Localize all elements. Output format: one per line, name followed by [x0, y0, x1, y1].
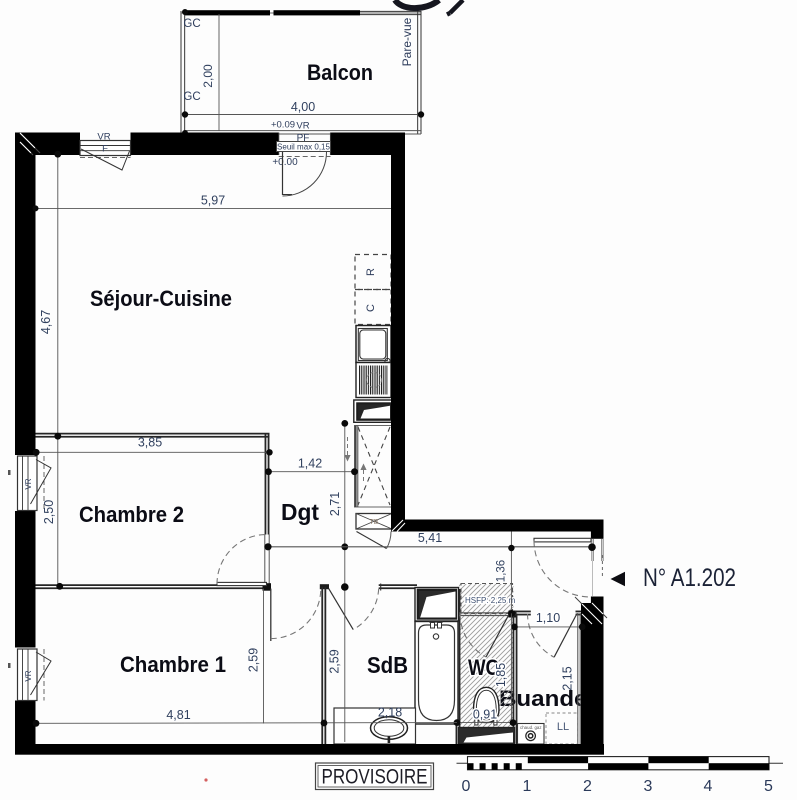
svg-text:2: 2 — [583, 778, 592, 795]
svg-text:4,67: 4,67 — [39, 310, 53, 334]
svg-text:3,85: 3,85 — [138, 436, 162, 450]
svg-text:2,50: 2,50 — [42, 500, 56, 524]
svg-text:N° A1.202: N° A1.202 — [643, 564, 736, 592]
svg-text:2,59: 2,59 — [328, 649, 342, 673]
svg-text:4,00: 4,00 — [291, 100, 315, 114]
svg-text:2,71: 2,71 — [328, 492, 342, 516]
svg-text:0: 0 — [462, 778, 471, 795]
svg-text:1,10: 1,10 — [536, 611, 560, 625]
svg-text:SdB: SdB — [367, 652, 408, 678]
svg-text:C: C — [365, 304, 377, 312]
svg-text:1,36: 1,36 — [496, 560, 508, 582]
svg-text:Seuil max 0,15: Seuil max 0,15 — [277, 143, 330, 152]
svg-text:Chambre 2: Chambre 2 — [79, 502, 184, 527]
svg-text:Pare-vue: Pare-vue — [400, 17, 414, 66]
svg-text:0,91: 0,91 — [473, 708, 497, 722]
svg-text:+0.00: +0.00 — [272, 157, 298, 168]
svg-text:+0.09: +0.09 — [271, 120, 295, 131]
svg-text:Chambre 1: Chambre 1 — [120, 652, 226, 677]
svg-text:1,42: 1,42 — [298, 457, 322, 471]
svg-text:4: 4 — [704, 778, 713, 795]
svg-text:LL: LL — [557, 721, 569, 733]
svg-text:VR: VR — [296, 121, 309, 132]
svg-text:1,85: 1,85 — [494, 663, 508, 687]
svg-text:2,15: 2,15 — [561, 666, 575, 690]
svg-text:5,97: 5,97 — [201, 194, 225, 208]
svg-text:VR: VR — [97, 132, 110, 143]
svg-text:VR: VR — [24, 670, 33, 681]
svg-text:5,41: 5,41 — [418, 531, 442, 545]
svg-text:GC: GC — [183, 18, 200, 30]
svg-text:4,81: 4,81 — [166, 708, 190, 722]
svg-text:3: 3 — [644, 778, 653, 795]
svg-text:HSFP: 2,25 m: HSFP: 2,25 m — [465, 596, 516, 605]
svg-text:chaud. gaz: chaud. gaz — [520, 725, 541, 730]
svg-text:TB: TB — [370, 519, 379, 526]
svg-text:2,18: 2,18 — [378, 706, 402, 720]
svg-text:VR: VR — [24, 478, 33, 489]
svg-text:R: R — [365, 268, 377, 276]
svg-text:2,59: 2,59 — [247, 648, 261, 672]
svg-text:Dgt: Dgt — [281, 499, 319, 525]
svg-text:5: 5 — [764, 778, 773, 795]
svg-text:1: 1 — [523, 778, 532, 795]
svg-text:Séjour-Cuisine: Séjour-Cuisine — [90, 286, 232, 311]
svg-text:2,00: 2,00 — [201, 64, 215, 88]
svg-text:F: F — [102, 144, 108, 155]
svg-text:Balcon: Balcon — [307, 60, 373, 85]
svg-text:GC: GC — [183, 91, 200, 103]
svg-text:PROVISOIRE: PROVISOIRE — [322, 766, 428, 789]
